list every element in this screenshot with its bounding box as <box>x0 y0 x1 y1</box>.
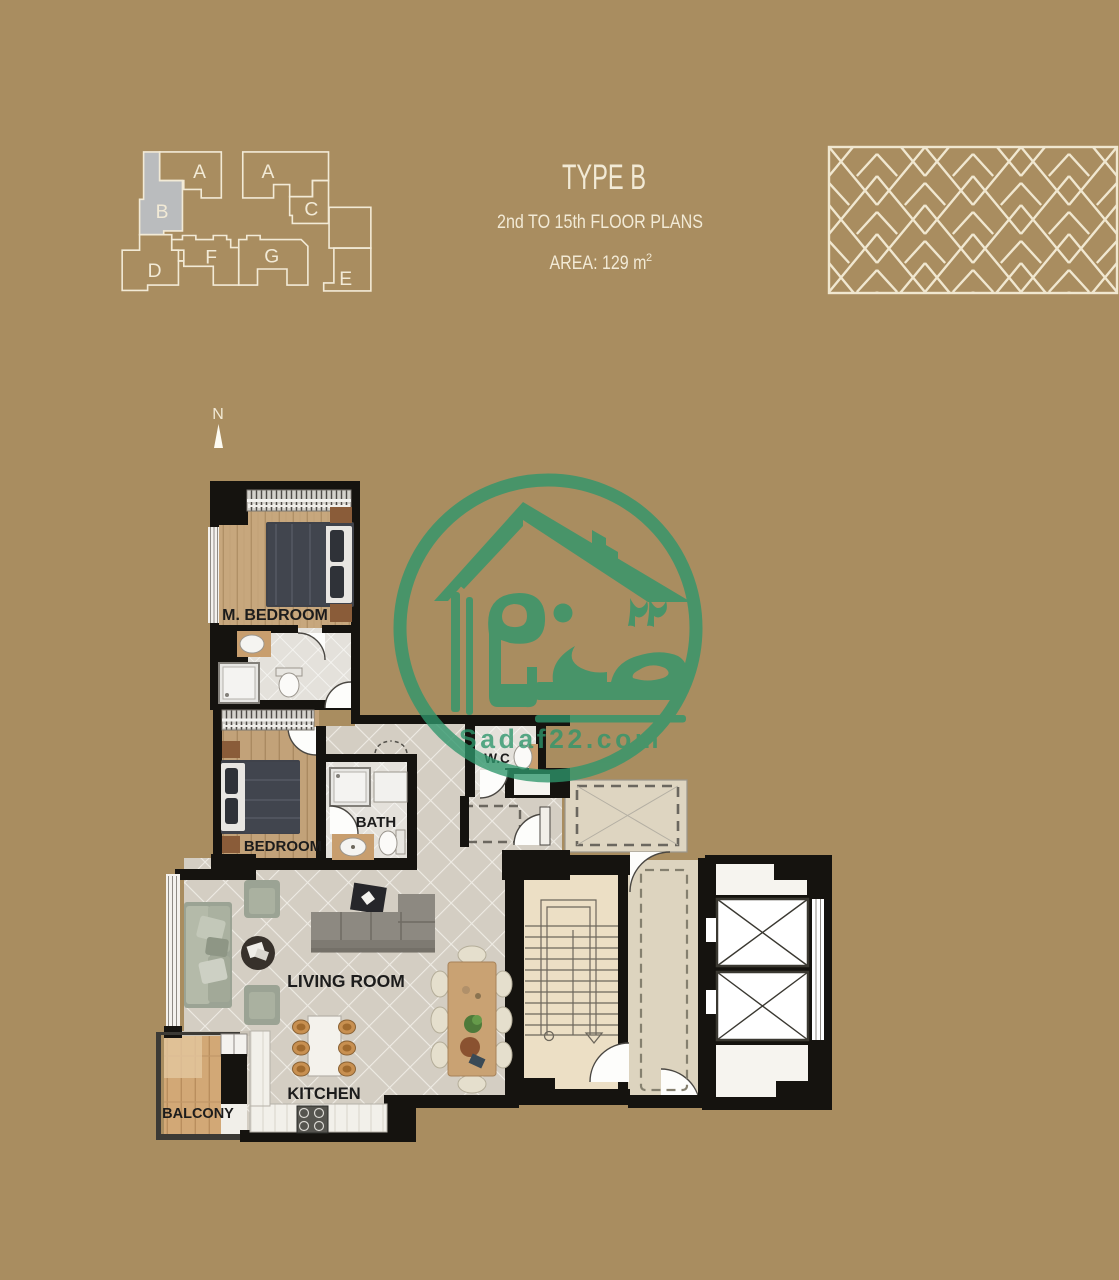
svg-text:AREA: 129 m: AREA: 129 m <box>550 253 647 274</box>
svg-text:D: D <box>148 261 162 282</box>
svg-text:B: B <box>156 202 169 223</box>
svg-text:E: E <box>339 269 352 290</box>
svg-text:F: F <box>205 248 217 269</box>
svg-text:TYPE B: TYPE B <box>562 158 646 197</box>
svg-text:M. BEDROOM: M. BEDROOM <box>222 607 328 624</box>
svg-text:G: G <box>264 246 279 267</box>
svg-text:A: A <box>193 162 206 183</box>
svg-text:2: 2 <box>646 252 652 264</box>
svg-text:BEDROOM: BEDROOM <box>244 838 322 855</box>
svg-text:BALCONY: BALCONY <box>162 1106 234 1122</box>
svg-text:KITCHEN: KITCHEN <box>287 1085 360 1103</box>
svg-text:Sadaf22.com: Sadaf22.com <box>459 724 662 754</box>
svg-text:A: A <box>262 162 275 183</box>
svg-text:BATH: BATH <box>356 814 397 831</box>
svg-text:2nd TO 15th FLOOR PLANS: 2nd TO 15th FLOOR PLANS <box>497 211 703 233</box>
svg-text:LIVING ROOM: LIVING ROOM <box>287 971 405 991</box>
svg-text:N: N <box>212 406 224 423</box>
svg-text:C: C <box>304 199 318 220</box>
